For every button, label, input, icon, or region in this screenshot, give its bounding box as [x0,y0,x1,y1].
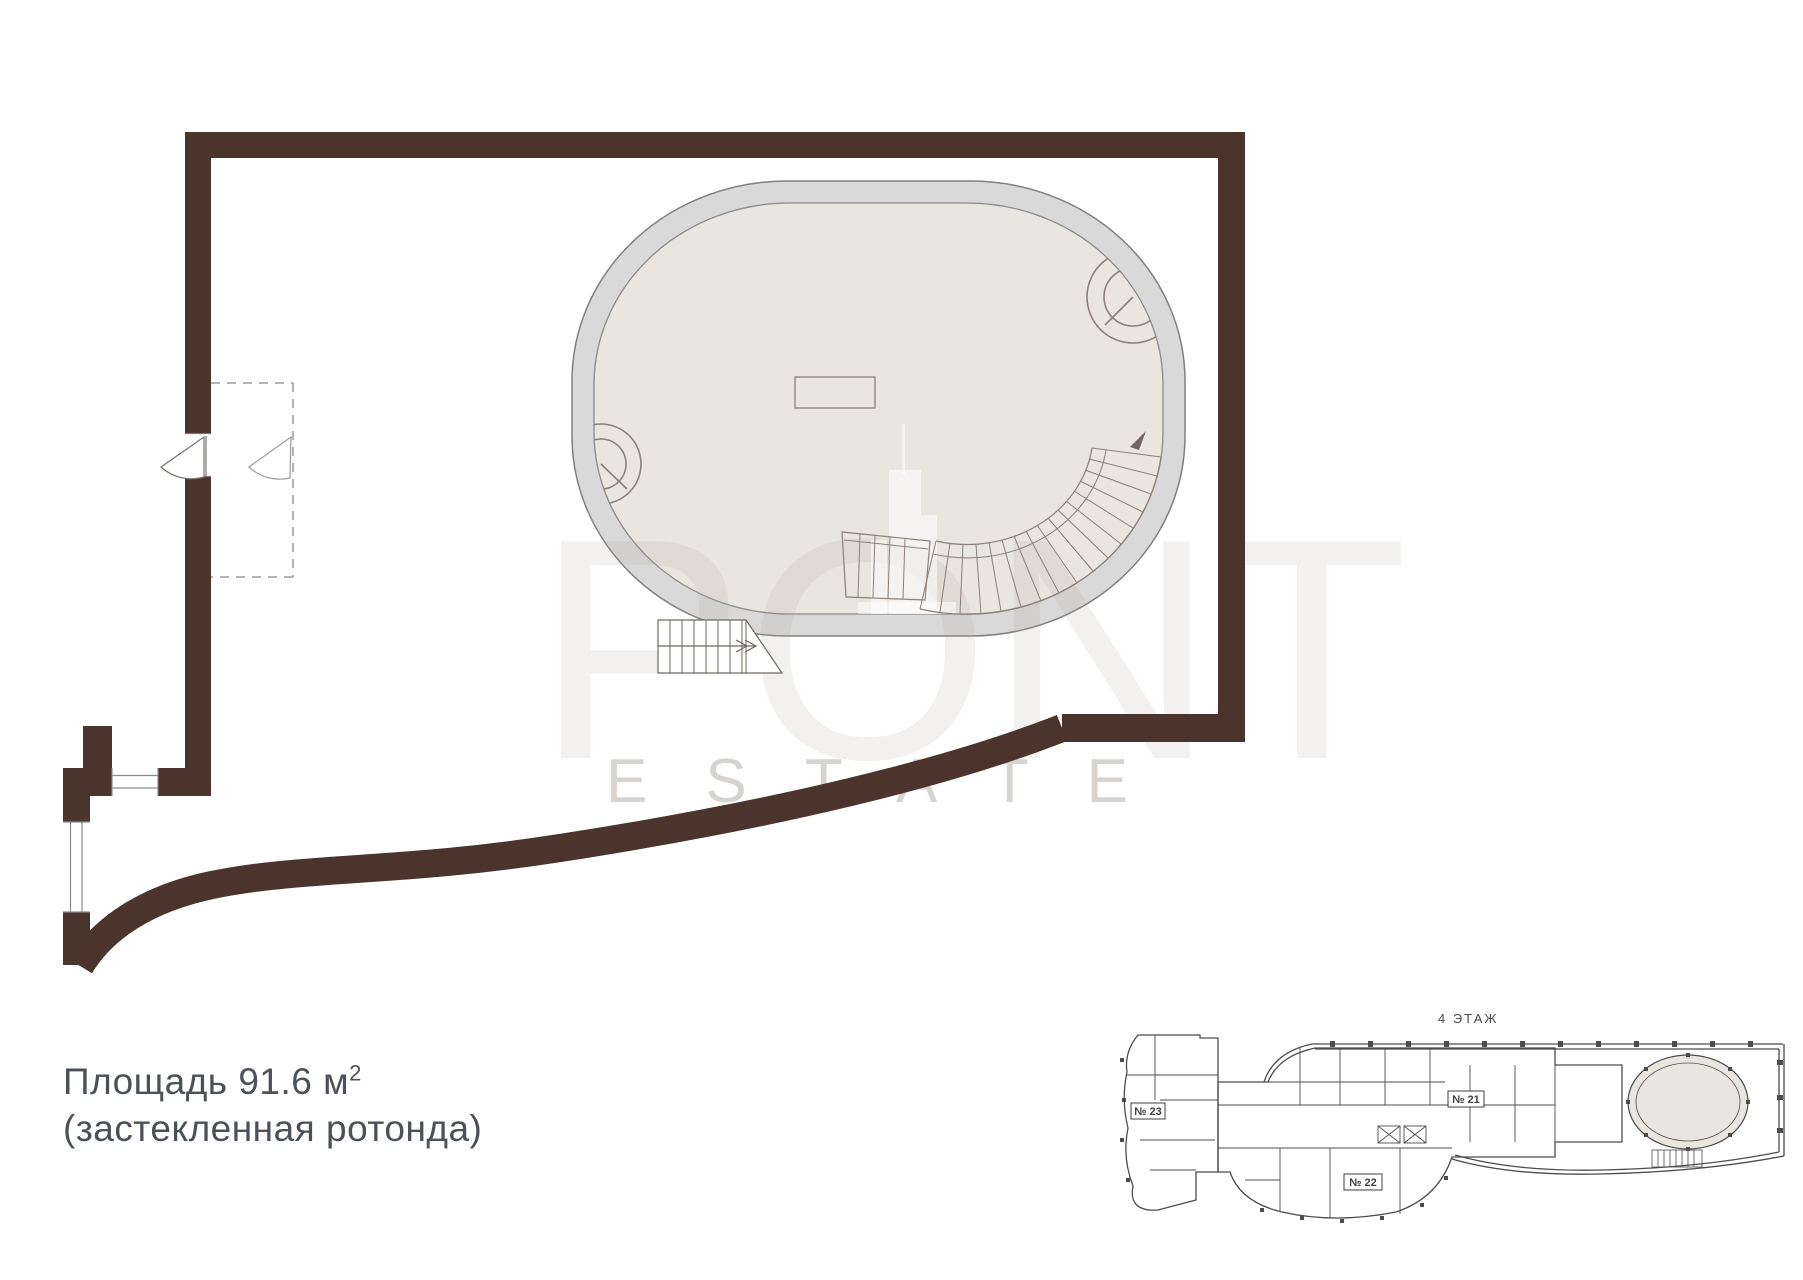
area-subtitle: (застекленная ротонда) [63,1105,482,1152]
mini-unit-labels: № 21 № 22 № 23 [1131,1091,1484,1190]
mini-left-wing-outline [1124,1035,1218,1210]
dashed-partition [211,383,293,577]
mini-central-outline [1218,1048,1622,1218]
unit-23-label: № 23 [1134,1106,1162,1118]
entry-door [161,434,211,479]
area-superscript: 2 [349,1061,362,1086]
wall-left-upper [185,132,211,433]
area-line: Площадь 91.6 м2 [63,1058,482,1105]
mini-plan-floor-label: 4 ЭТАЖ [1438,1011,1498,1026]
area-value: Площадь 91.6 м [63,1061,349,1102]
entry-door-swing [161,437,204,479]
unit-22-label: № 22 [1349,1177,1377,1189]
dashed-door-swing [249,437,291,479]
unit-21-label: № 21 [1452,1094,1480,1106]
window-bottom-horizontal [112,768,158,796]
wall-bottom-right [1062,714,1245,742]
wall-right [1218,132,1245,742]
window-left-vertical [63,822,90,912]
wall-left-lower [185,477,211,796]
mini-floor-plan: 4 ЭТАЖ № 21 [1120,1011,1784,1223]
mini-plan-rooms [1127,1035,1555,1218]
floor-plan-page: PO NT ESTATE [0,0,1803,1280]
area-info-block: Площадь 91.6 м2 (застекленная ротонда) [63,1058,482,1152]
wall-left-stub [83,726,112,768]
wall-top [185,132,1245,158]
mini-terrace-curve [1452,1152,1784,1174]
